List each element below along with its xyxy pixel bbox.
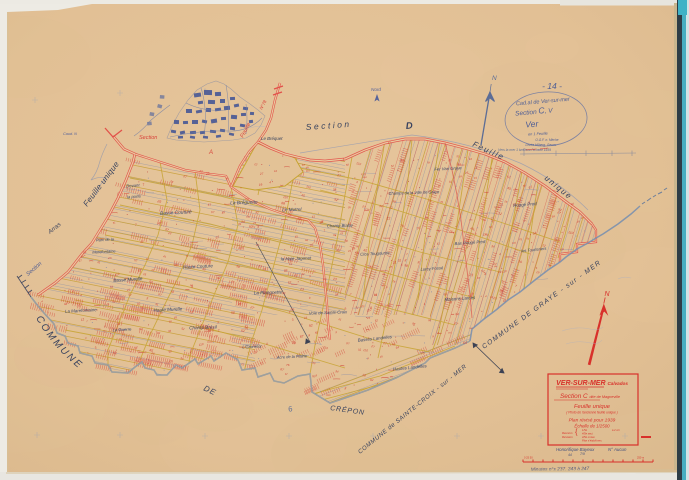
svg-text:12: 12	[274, 169, 278, 173]
svg-text:92: 92	[157, 331, 161, 335]
svg-text:Section C dite de Magneville: Section C dite de Magneville	[560, 393, 620, 400]
svg-text:A: A	[208, 150, 213, 156]
svg-text:23: 23	[107, 256, 112, 260]
svg-text:52: 52	[481, 269, 485, 273]
svg-text:Feuille unique: Feuille unique	[574, 404, 611, 410]
svg-text:23: 23	[332, 277, 337, 281]
svg-text:L'Gronelot: L'Gronelot	[242, 344, 262, 350]
svg-text:110: 110	[363, 348, 369, 353]
svg-text:45: 45	[140, 240, 144, 244]
svg-text:250 m: 250 m	[637, 456, 644, 460]
svg-text:Levée Hilberg, Geom.: Levée Hilberg, Geom.	[525, 143, 556, 147]
svg-text:à 2 crn: à 2 crn	[612, 428, 620, 432]
svg-text:la porte: la porte	[127, 193, 142, 199]
svg-text:La Plangoette: La Plangoette	[254, 289, 283, 295]
svg-text:- 14 -: - 14 -	[542, 81, 562, 91]
svg-text:88: 88	[174, 263, 178, 267]
svg-text:9: 9	[191, 285, 193, 289]
svg-text:23: 23	[115, 317, 120, 321]
svg-text:67: 67	[477, 276, 481, 280]
svg-text:12: 12	[289, 262, 293, 266]
svg-text:1/5e: 1/5e	[582, 428, 588, 432]
svg-text:D: D	[405, 121, 413, 132]
svg-text:52: 52	[507, 175, 511, 179]
svg-text:64: 64	[139, 327, 143, 331]
svg-text:Le Bréquet: Le Bréquet	[261, 136, 283, 141]
svg-text:34: 34	[379, 204, 383, 208]
svg-text:Vers la mer 1 km: Vers la mer 1 km	[498, 148, 524, 152]
svg-text:O.G.F. n. Mèche: O.G.F. n. Mèche	[535, 138, 558, 142]
svg-text:Devant: Devant	[126, 182, 140, 188]
svg-text:( Photo de l'ancienne feuille: ( Photo de l'ancienne feuille unique )	[566, 411, 617, 415]
svg-text:25: 25	[492, 296, 497, 301]
svg-text:Section: Section	[139, 135, 157, 141]
svg-text:23: 23	[468, 273, 473, 277]
svg-text:4/5e sect.: 4/5e sect.	[582, 432, 594, 436]
svg-text:19: 19	[214, 334, 218, 338]
svg-text:92: 92	[217, 276, 221, 280]
svg-text:19: 19	[498, 270, 502, 274]
svg-text:La Guerre: La Guerre	[112, 327, 132, 333]
svg-text:76: 76	[286, 363, 290, 367]
svg-text:92: 92	[309, 323, 313, 328]
svg-text:25: 25	[464, 171, 469, 175]
svg-text:7/9: 7/9	[580, 452, 585, 456]
svg-text:Parc de la: Parc de la	[96, 236, 115, 242]
svg-text:12: 12	[389, 206, 393, 210]
svg-text:41: 41	[400, 158, 404, 162]
svg-text:58: 58	[355, 251, 359, 255]
svg-text:Nord: Nord	[371, 87, 381, 92]
svg-text:27: 27	[259, 172, 264, 176]
svg-text:16: 16	[169, 359, 173, 363]
svg-text:23: 23	[303, 316, 308, 320]
svg-text:34: 34	[425, 216, 429, 220]
svg-text:N: N	[492, 75, 497, 82]
svg-text:La Bréguette: La Bréguette	[230, 200, 258, 207]
svg-text:27: 27	[580, 216, 585, 220]
svg-text:34: 34	[455, 312, 459, 316]
svg-text:Plan s'établit ens.: Plan s'établit ens.	[582, 439, 603, 443]
svg-text:44: 44	[568, 453, 572, 457]
svg-text:25: 25	[204, 171, 209, 176]
svg-text:Caud. N: Caud. N	[63, 132, 77, 136]
svg-text:23: 23	[347, 249, 352, 253]
svg-text:58: 58	[298, 217, 302, 221]
svg-text:110: 110	[361, 172, 366, 176]
svg-text:Honorifique Bayeux: Honorifique Bayeux	[556, 447, 595, 452]
svg-text:23: 23	[366, 316, 371, 320]
svg-text:27: 27	[157, 221, 162, 225]
svg-text:N° Aucun: N° Aucun	[608, 447, 627, 452]
svg-text:34: 34	[241, 220, 245, 224]
svg-text:4/5e omise: 4/5e omise	[582, 435, 595, 439]
svg-text:0 25 50: 0 25 50	[524, 456, 533, 460]
svg-text:Ver: Ver	[525, 118, 540, 129]
svg-text:Champ Brésil: Champ Brésil	[189, 324, 218, 330]
svg-text:92: 92	[370, 378, 374, 382]
svg-text:31: 31	[369, 265, 373, 269]
svg-text:92: 92	[113, 351, 117, 355]
svg-text:64: 64	[463, 341, 467, 345]
svg-text:76: 76	[433, 252, 437, 256]
svg-text:Échelle de 1/2500: Échelle de 1/2500	[574, 424, 610, 429]
svg-text:12: 12	[493, 262, 497, 266]
svg-text:VER-SUR-MER Calvados: VER-SUR-MER Calvados	[556, 380, 628, 387]
svg-text:27: 27	[388, 265, 392, 269]
svg-text:23: 23	[299, 287, 304, 292]
svg-text:76: 76	[440, 200, 444, 204]
svg-text:58: 58	[231, 311, 235, 315]
svg-text:12: 12	[189, 310, 193, 315]
svg-text:Révision: Révision	[562, 435, 573, 439]
svg-text:16: 16	[362, 373, 366, 377]
svg-text:67: 67	[211, 210, 215, 214]
svg-text:Champ Bialay: Champ Bialay	[327, 223, 354, 229]
svg-text:110: 110	[283, 195, 289, 199]
svg-text:76: 76	[400, 224, 404, 228]
svg-text:Le Mutrel: Le Mutrel	[282, 207, 302, 213]
